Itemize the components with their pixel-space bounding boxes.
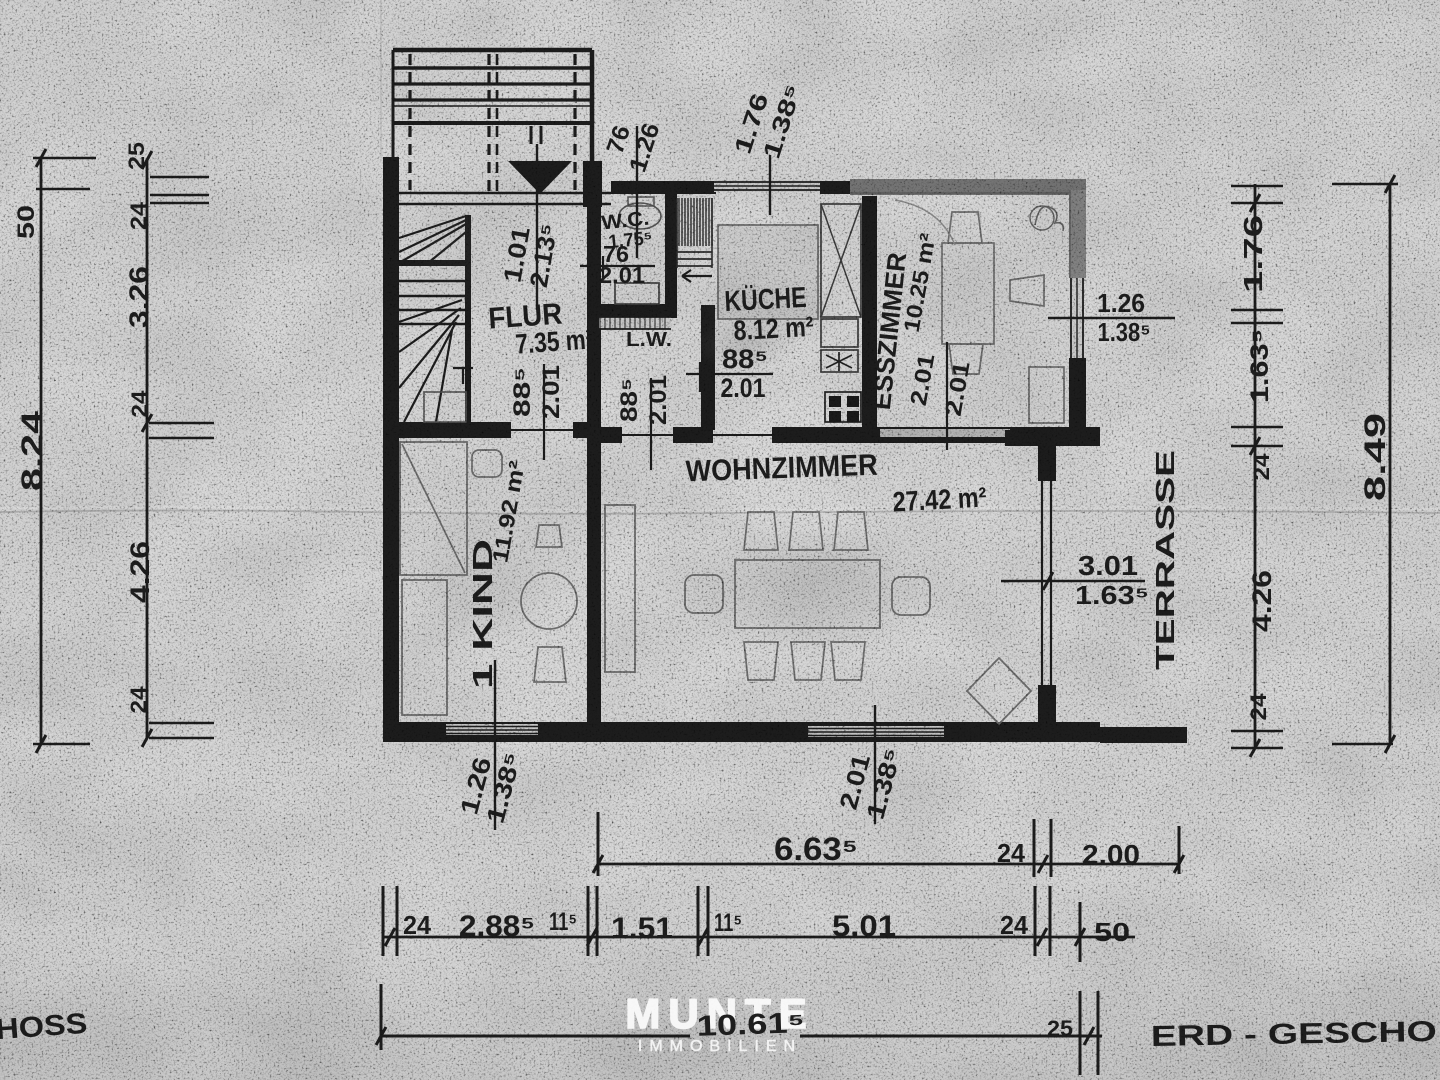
svg-text:10.61⁵: 10.61⁵ xyxy=(696,1007,805,1043)
